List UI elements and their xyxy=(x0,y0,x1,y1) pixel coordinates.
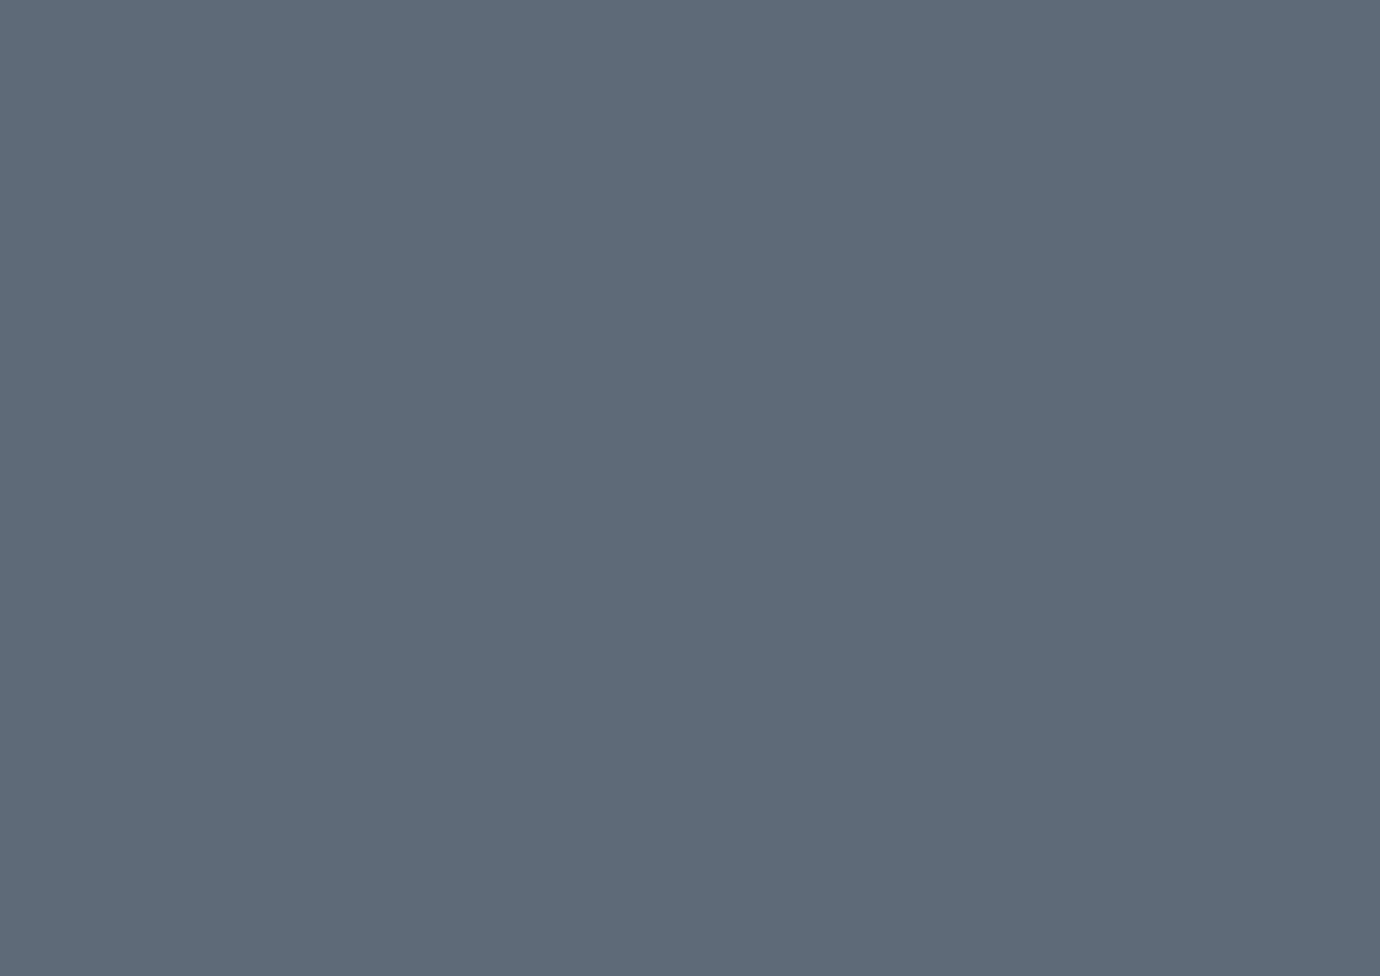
rendering-canvas xyxy=(0,0,1380,976)
aerial-stadium-rendering: Aerial daytime rendering of an oval stad… xyxy=(0,0,1380,976)
